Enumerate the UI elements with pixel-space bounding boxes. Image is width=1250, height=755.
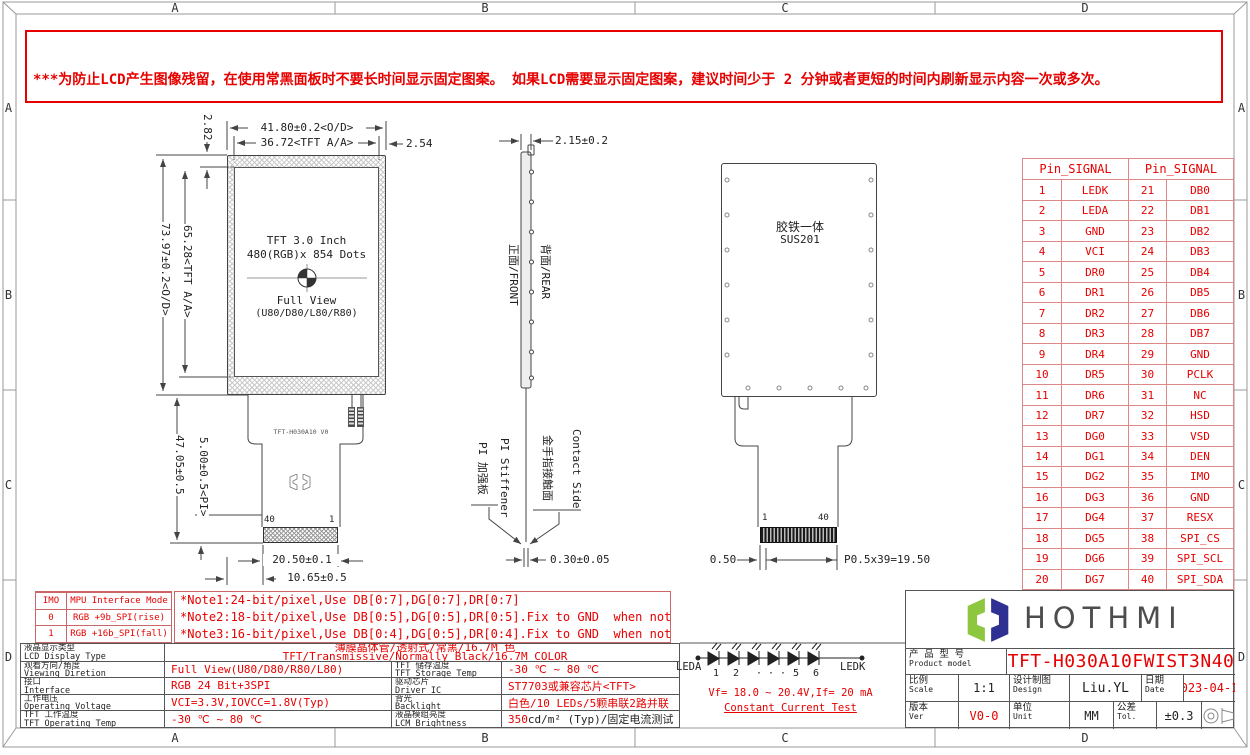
led-test-condition: Constant Current Test xyxy=(698,702,883,714)
pin-signal: DR6 xyxy=(1061,384,1128,404)
note-line: *Note2:18-bit/pixel,Use DB[0:5],DG[0:5],… xyxy=(180,610,670,624)
led-circuit-diagram xyxy=(696,643,864,665)
pin-signal: DG4 xyxy=(1061,507,1128,527)
fpc-component xyxy=(348,407,355,427)
projection-symbol-cell xyxy=(1201,701,1235,729)
pin-table-row: 1 LEDK 21 DB0 xyxy=(1023,179,1233,199)
pin-signal: DG6 xyxy=(1061,548,1128,568)
pin-signal: DR0 xyxy=(1061,261,1128,281)
pin-number: 23 xyxy=(1128,220,1166,240)
pin-number: 1 xyxy=(1023,179,1061,199)
pin-signal: PCLK xyxy=(1166,364,1233,384)
spec-table: 液晶显示类型 LCD Display Type 薄膜晶体管/透射式/常黑/16.… xyxy=(20,643,680,728)
pin-signal: DB1 xyxy=(1166,200,1233,220)
led-number: 5 xyxy=(790,668,802,679)
pin-table-row: 9 DR4 29 GND xyxy=(1023,343,1233,363)
spec-label-en: Backlight xyxy=(395,703,501,710)
pin-number: 20 xyxy=(1023,569,1061,589)
projection-symbol-icon xyxy=(1203,705,1235,727)
pin-table-row: 4 VCI 24 DB3 xyxy=(1023,241,1233,261)
rear-fpc-outline xyxy=(735,397,852,527)
pin-signal: DB0 xyxy=(1166,179,1233,199)
dim-connector-width: 20.50±0.1 xyxy=(263,554,341,566)
pin-signal-table: Pin_SIGNAL Pin_SIGNAL 1 LEDK 21 DB0 2 LE… xyxy=(1022,158,1234,590)
pin-signal: GND xyxy=(1166,487,1233,507)
pin-signal: SPI_SCL xyxy=(1166,548,1233,568)
imo-mode-value: IMO xyxy=(36,592,66,609)
front-view-panel: TFT 3.0 Inch 480(RGB)x 854 Dots Full Vie… xyxy=(227,155,386,395)
spec-label-en: Driver IC xyxy=(395,687,501,694)
pin-number: 39 xyxy=(1128,548,1166,568)
tolerance-value: ±0.3 xyxy=(1156,701,1201,729)
zone-letter-right-a: A xyxy=(1235,101,1248,115)
brightness-unit: cd/m² (Typ)/固定电流测试 xyxy=(528,711,673,727)
zone-letter-bottom-d: D xyxy=(1070,731,1100,745)
imo-table-row: 0 RGB +9b_SPI(rise) xyxy=(36,609,171,626)
pin-number: 9 xyxy=(1023,343,1061,363)
imo-table-row: IMO MPU Interface Mode xyxy=(36,592,171,609)
pin-number: 33 xyxy=(1128,425,1166,445)
pin-table-row: 14 DG1 34 DEN xyxy=(1023,446,1233,466)
pin-number: 5 xyxy=(1023,261,1061,281)
dim-pin-pitch-total: P0.5x39=19.50 xyxy=(843,554,945,566)
date-label-en: Date xyxy=(1145,686,1183,694)
imo-mode-value: 0 xyxy=(36,609,66,626)
spec-value-driver-ic: ST7703或兼容芯片<TFT> xyxy=(501,677,679,694)
design-label-en: Design xyxy=(1013,686,1069,694)
dim-width-aa: 36.72<TFT A/A> xyxy=(256,137,358,149)
front-fpc-connector xyxy=(263,527,338,543)
zone-letter-top-d: D xyxy=(1070,1,1100,15)
rear-pin-1-label: 1 xyxy=(762,513,767,523)
warning-box: ***为防止LCD产生图像残留，在使用常黑面板时不要长时间显示固定图案。 如果L… xyxy=(25,30,1223,103)
pin-signal: DB3 xyxy=(1166,241,1233,261)
spec-value-backlight: 白色/10 LEDs/5颗串联2路并联 xyxy=(501,694,679,711)
pin-table-body: 1 LEDK 21 DB0 2 LEDA 22 DB1 3 GND 23 DB2 xyxy=(1023,179,1233,589)
pin-number: 11 xyxy=(1023,384,1061,404)
pin-number: 6 xyxy=(1023,282,1061,302)
warning-line: ***为防止LCD产生图像残留，在使用常黑面板时不要长时间显示固定图案。 如果L… xyxy=(33,72,1215,89)
pin-signal: DB2 xyxy=(1166,220,1233,240)
spec-label: TFT 工作温度 TFT Operating Temp xyxy=(21,710,164,727)
pin-number: 12 xyxy=(1023,405,1061,425)
imo-mode-description: RGB +9b_SPI(rise) xyxy=(66,609,171,626)
pin-signal: DB7 xyxy=(1166,323,1233,343)
active-area: TFT 3.0 Inch 480(RGB)x 854 Dots Full Vie… xyxy=(234,167,379,377)
pin-signal: DR7 xyxy=(1061,405,1128,425)
pin-table-row: 16 DG3 36 GND xyxy=(1023,487,1233,507)
logo-cell: HOTHMI xyxy=(906,591,1235,648)
pin-number: 38 xyxy=(1128,528,1166,548)
pin-table-row: 7 DR2 27 DB6 xyxy=(1023,302,1233,322)
dim-right-margin: 2.54 xyxy=(405,138,443,150)
product-model-value: TFT-H030A10FWIST3N40 xyxy=(1006,648,1235,674)
fpc-component xyxy=(357,407,364,427)
pin-signal: DB4 xyxy=(1166,261,1233,281)
pin-number: 18 xyxy=(1023,528,1061,548)
spec-label-en: LCM Brightness xyxy=(395,720,501,727)
brand-name: HOTHMI xyxy=(1024,601,1184,635)
pin-signal: DG1 xyxy=(1061,446,1128,466)
pin-signal: VCI xyxy=(1061,241,1128,261)
drawing-sheet: A B C D A B C D A B C D A B C D ***为防止LC… xyxy=(0,0,1250,755)
pin-number: 3 xyxy=(1023,220,1061,240)
pin-signal: DB6 xyxy=(1166,302,1233,322)
tolerance-label: 公差 Tol. xyxy=(1113,701,1156,729)
pin-number: 7 xyxy=(1023,302,1061,322)
zone-letter-right-d: D xyxy=(1235,650,1248,664)
pin-signal: DB5 xyxy=(1166,282,1233,302)
spec-value-display-type: 薄膜晶体管/透射式/常黑/16.7M 色 TFT/Transmissive/No… xyxy=(164,644,679,661)
spec-label-en: TFT Storage Temp xyxy=(395,670,501,677)
spec-value-en: TFT/Transmissive/Normally Black/16.7M CO… xyxy=(283,652,568,660)
scale-label-en: Scale xyxy=(909,686,958,694)
spec-label: 工作电压 Operating Voltage xyxy=(21,694,164,711)
dim-thickness: 2.15±0.2 xyxy=(554,135,620,147)
title-block: HOTHMI 产 品 型 号 Product model TFT-H030A10… xyxy=(905,590,1234,728)
pin-signal: DEN xyxy=(1166,446,1233,466)
pin-table-row: 17 DG4 37 RESX xyxy=(1023,507,1233,527)
product-model-label: 产 品 型 号 Product model xyxy=(906,648,1006,674)
pin-number: 36 xyxy=(1128,487,1166,507)
spec-label: 观看方向/角度 Viewing Diretion xyxy=(21,661,164,678)
side-profile xyxy=(521,145,534,542)
tolerance-label-en: Tol. xyxy=(1117,713,1156,721)
pin-number: 32 xyxy=(1128,405,1166,425)
pin-table-row: 11 DR6 31 NC xyxy=(1023,384,1233,404)
pin-table-row: 15 DG2 35 IMO xyxy=(1023,466,1233,486)
zone-letter-right-c: C xyxy=(1235,478,1248,492)
spec-label: 接口 Interface xyxy=(21,677,164,694)
pin-number: 25 xyxy=(1128,261,1166,281)
spec-value-brightness: 350 cd/m² (Typ)/固定电流测试 xyxy=(501,710,679,727)
pin-signal: DG7 xyxy=(1061,569,1128,589)
dim-width-od: 41.80±0.2<O/D> xyxy=(248,122,366,134)
front-pin-40-label: 40 xyxy=(264,515,275,525)
pin-signal: SPI_CS xyxy=(1166,528,1233,548)
pin-signal: DG3 xyxy=(1061,487,1128,507)
pin-signal: HSD xyxy=(1166,405,1233,425)
led-number: 2 xyxy=(730,668,742,679)
dim-pin-edge: 0.50 xyxy=(705,554,741,566)
centering-mark xyxy=(247,264,367,292)
panel-view-angles-label: (U80/D80/L80/R80) xyxy=(235,308,378,319)
pin-number: 22 xyxy=(1128,200,1166,220)
pin-table-header-left: Pin_SIGNAL xyxy=(1023,159,1128,179)
dim-top-margin: 2.82 xyxy=(201,113,213,142)
pin-signal: IMO xyxy=(1166,466,1233,486)
pin-number: 2 xyxy=(1023,200,1061,220)
pin-signal: LEDA xyxy=(1061,200,1128,220)
led-number: 1 xyxy=(710,668,722,679)
pin-table-row: 5 DR0 25 DB4 xyxy=(1023,261,1233,281)
zone-letter-top-a: A xyxy=(160,1,190,15)
spec-label: 液晶显示类型 LCD Display Type xyxy=(21,644,164,661)
contact-side-en-label: Contact Side xyxy=(570,428,582,509)
pin-number: 37 xyxy=(1128,507,1166,527)
zone-letter-right-b: B xyxy=(1235,288,1248,302)
spec-value-viewing: Full View(U80/D80/R80/L80) xyxy=(164,661,391,678)
pin-number: 26 xyxy=(1128,282,1166,302)
zone-letter-left-b: B xyxy=(2,288,15,302)
panel-view-label: Full View xyxy=(235,294,378,307)
imo-mode-description: RGB +16b_SPI(fall) xyxy=(66,625,171,642)
led-vf-spec: Vf= 18.0 ~ 20.4V,If= 20 mA xyxy=(698,687,883,699)
pin-signal: SPI_SDA xyxy=(1166,569,1233,589)
pin-number: 28 xyxy=(1128,323,1166,343)
zone-letter-bottom-b: B xyxy=(470,731,500,745)
scale-label: 比例 Scale xyxy=(906,674,958,701)
led-number-dots: · · · xyxy=(748,668,794,679)
zone-letter-left-a: A xyxy=(2,101,15,115)
dim-height-od: 73.97±0.2<O/D> xyxy=(159,222,171,317)
spec-label-en: Operating Voltage xyxy=(24,703,164,710)
front-fpc-outline xyxy=(248,395,363,527)
spec-label: 液晶模组亮度 LCM Brightness xyxy=(391,710,501,727)
pin-table-row: 3 GND 23 DB2 xyxy=(1023,220,1233,240)
spec-value-operating-temp: -30 ℃ ~ 80 ℃ xyxy=(164,710,391,727)
zone-letter-bottom-a: A xyxy=(160,731,190,745)
dim-fpc-thickness: 0.30±0.05 xyxy=(549,554,627,566)
scale-value: 1:1 xyxy=(958,674,1009,701)
contact-side-cn-label: 金手指接触面 xyxy=(541,434,553,502)
pi-stiffener-cn-label: PI 加强板 xyxy=(476,441,488,496)
unit-value: MM xyxy=(1069,701,1113,729)
side-front-label: 正面/FRONT xyxy=(507,243,519,307)
zone-letter-left-d: D xyxy=(2,650,15,664)
pin-table-header: Pin_SIGNAL Pin_SIGNAL xyxy=(1023,159,1233,179)
rear-pin-40-label: 40 xyxy=(818,513,829,523)
fpc-part-number: TFT-H030A10 V0 xyxy=(266,428,336,436)
brightness-value: 350 xyxy=(508,713,528,726)
spec-value-interface: RGB 24 Bit+3SPI xyxy=(164,677,391,694)
led-cathode-label: LEDK xyxy=(840,661,865,673)
panel-size-label: TFT 3.0 Inch xyxy=(235,234,378,247)
version-label-en: Ver xyxy=(909,713,958,721)
zone-letter-left-c: C xyxy=(2,478,15,492)
spec-label: 驱动芯片 Driver IC xyxy=(391,677,501,694)
spec-label-en: TFT Operating Temp xyxy=(24,720,164,727)
fpc-logo-mark xyxy=(288,474,312,490)
pin-signal: GND xyxy=(1166,343,1233,363)
pin-signal: DR5 xyxy=(1061,364,1128,384)
imo-mode-value: 1 xyxy=(36,625,66,642)
pin-number: 13 xyxy=(1023,425,1061,445)
pin-table-header-right: Pin_SIGNAL xyxy=(1128,159,1233,179)
pin-number: 31 xyxy=(1128,384,1166,404)
pin-signal: DR3 xyxy=(1061,323,1128,343)
pin-table-row: 12 DR7 32 HSD xyxy=(1023,405,1233,425)
pin-number: 40 xyxy=(1128,569,1166,589)
design-label: 设计制图 Design xyxy=(1009,674,1069,701)
pin-signal: DR4 xyxy=(1061,343,1128,363)
zone-letter-bottom-c: C xyxy=(770,731,800,745)
pin-number: 29 xyxy=(1128,343,1166,363)
notes-box: *Note1:24-bit/pixel,Use DB[0:7],DG[0:7],… xyxy=(174,591,671,643)
pin-signal: DG5 xyxy=(1061,528,1128,548)
led-number: 6 xyxy=(810,668,822,679)
led-symbol xyxy=(708,643,821,665)
panel-resolution-label: 480(RGB)x 854 Dots xyxy=(235,248,378,261)
pin-table-row: 8 DR3 28 DB7 xyxy=(1023,323,1233,343)
pin-number: 4 xyxy=(1023,241,1061,261)
spec-label: TFT 储存温度 TFT Storage Temp xyxy=(391,661,501,678)
imo-mode-description: MPU Interface Mode xyxy=(66,592,171,609)
dim-height-aa: 65.28<TFT A/A> xyxy=(181,224,193,319)
side-rear-label: 背面/REAR xyxy=(539,243,551,300)
dim-fpc-length: 47.05±0.5 xyxy=(173,434,185,496)
zone-letter-top-c: C xyxy=(770,1,800,15)
pin-number: 24 xyxy=(1128,241,1166,261)
version-label: 版本 Ver xyxy=(906,701,958,729)
design-value: Liu.YL xyxy=(1069,674,1141,701)
pin-signal: DR2 xyxy=(1061,302,1128,322)
pin-table-row: 13 DG0 33 VSD xyxy=(1023,425,1233,445)
pin-number: 27 xyxy=(1128,302,1166,322)
rear-view-panel xyxy=(721,163,877,397)
pin-number: 19 xyxy=(1023,548,1061,568)
pi-stiffener-en-label: PI Stiffener xyxy=(498,437,510,518)
spec-label-en: Viewing Diretion xyxy=(24,670,164,677)
product-model-label-en: Product model xyxy=(909,660,1006,668)
pin-number: 34 xyxy=(1128,446,1166,466)
unit-label: 单位 Unit xyxy=(1009,701,1069,729)
pin-signal: NC xyxy=(1166,384,1233,404)
front-pin-1-label: 1 xyxy=(329,515,334,525)
pin-signal: VSD xyxy=(1166,425,1233,445)
dim-connector-offset: 10.65±0.5 xyxy=(276,572,358,584)
spec-label-en: LCD Display Type xyxy=(24,653,164,661)
date-value: 2023-04-10 xyxy=(1183,674,1235,701)
pin-signal: DG2 xyxy=(1061,466,1128,486)
pin-table-row: 2 LEDA 22 DB1 xyxy=(1023,200,1233,220)
note-line: *Note3:16-bit/pixel,Use DB[0:4],DG[0:5],… xyxy=(180,627,670,641)
zone-letter-top-b: B xyxy=(470,1,500,15)
pin-signal: RESX xyxy=(1166,507,1233,527)
pin-number: 15 xyxy=(1023,466,1061,486)
pin-signal: LEDK xyxy=(1061,179,1128,199)
pin-number: 30 xyxy=(1128,364,1166,384)
hothmi-logo-icon xyxy=(956,595,1020,645)
pin-signal: DR1 xyxy=(1061,282,1128,302)
pin-number: 16 xyxy=(1023,487,1061,507)
pin-number: 17 xyxy=(1023,507,1061,527)
rear-material-grade: SUS201 xyxy=(770,233,830,246)
pin-number: 14 xyxy=(1023,446,1061,466)
spec-label-en: Interface xyxy=(24,687,164,694)
imo-mode-table: IMO MPU Interface Mode 0 RGB +9b_SPI(ris… xyxy=(35,591,172,643)
dim-pi-length: 5.00±0.5<PI> xyxy=(197,436,209,517)
pin-number: 21 xyxy=(1128,179,1166,199)
pin-number: 10 xyxy=(1023,364,1061,384)
imo-table-row: 1 RGB +16b_SPI(fall) xyxy=(36,625,171,642)
pin-table-row: 18 DG5 38 SPI_CS xyxy=(1023,528,1233,548)
pin-table-row: 10 DR5 30 PCLK xyxy=(1023,364,1233,384)
pin-number: 8 xyxy=(1023,323,1061,343)
pin-signal: DG0 xyxy=(1061,425,1128,445)
note-line: *Note1:24-bit/pixel,Use DB[0:7],DG[0:7],… xyxy=(180,593,670,607)
pin-table-row: 20 DG7 40 SPI_SDA xyxy=(1023,569,1233,589)
date-label: 日期 Date xyxy=(1141,674,1183,701)
pin-number: 35 xyxy=(1128,466,1166,486)
version-value: V0-0 xyxy=(958,701,1009,729)
pin-signal: GND xyxy=(1061,220,1128,240)
pin-table-row: 6 DR1 26 DB5 xyxy=(1023,282,1233,302)
spec-value-storage-temp: -30 ℃ ~ 80 ℃ xyxy=(501,661,679,678)
pin-table-row: 19 DG6 39 SPI_SCL xyxy=(1023,548,1233,568)
led-anode-label: LEDA xyxy=(676,661,701,673)
rear-fpc-connector xyxy=(760,527,837,543)
spec-label: 背光 Backlight xyxy=(391,694,501,711)
spec-value-voltage: VCI=3.3V,IOVCC=1.8V(Typ) xyxy=(164,694,391,711)
unit-label-en: Unit xyxy=(1013,713,1069,721)
